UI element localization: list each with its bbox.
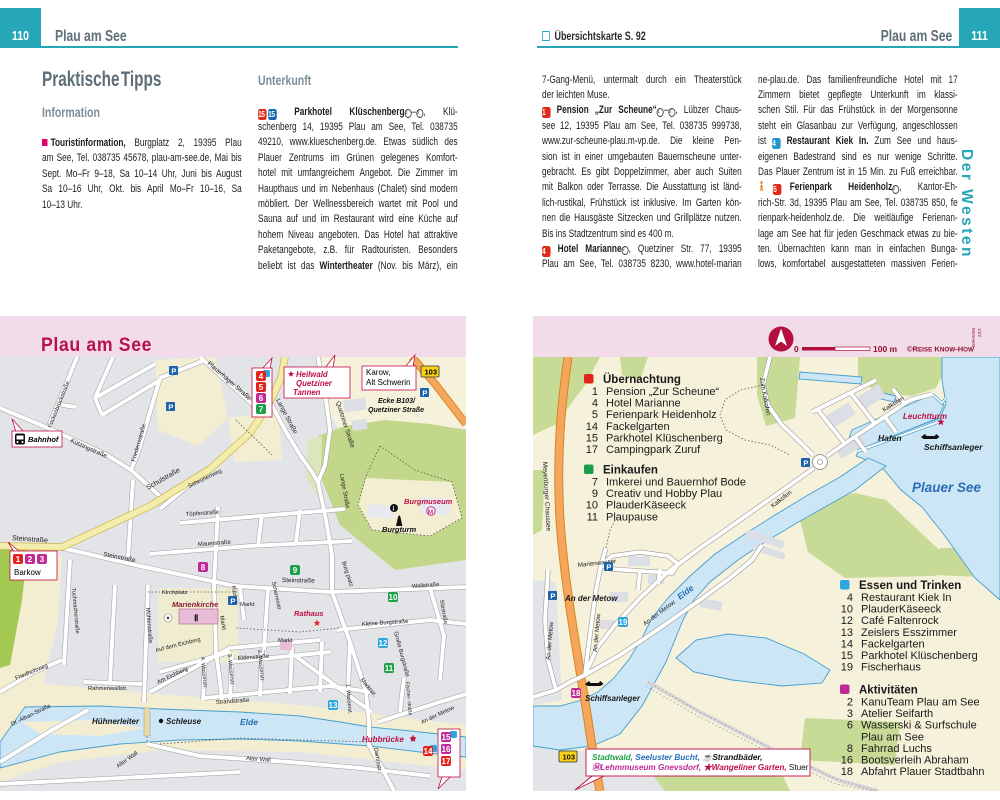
svg-text:19: 19: [619, 618, 628, 627]
svg-text:Creativ und Hobby Plau: Creativ und Hobby Plau: [606, 488, 722, 500]
svg-text:Heilwald: Heilwald: [296, 370, 328, 379]
svg-text:10: 10: [841, 604, 853, 616]
svg-text:Ecke B103/: Ecke B103/: [378, 398, 416, 405]
svg-text:Abfahrt Plauer Stadtbahn: Abfahrt Plauer Stadtbahn: [861, 766, 985, 778]
svg-text:Ferienpark Heidenholz: Ferienpark Heidenholz: [606, 409, 717, 421]
svg-text:An der Metow: An der Metow: [564, 594, 618, 603]
svg-text:Plaupause: Plaupause: [606, 511, 658, 523]
svg-text:P: P: [550, 591, 555, 600]
svg-text:4: 4: [259, 372, 264, 381]
svg-text:14: 14: [586, 421, 598, 433]
svg-text:8: 8: [201, 563, 206, 572]
svg-text:Elde: Elde: [240, 717, 258, 727]
svg-text:Schiffsanleger: Schiffsanleger: [924, 442, 983, 452]
svg-text:MeSee03: MeSee03: [971, 328, 976, 348]
svg-text:Bahnhof: Bahnhof: [28, 435, 60, 444]
svg-text:Leuchtturm: Leuchtturm: [903, 412, 947, 421]
svg-text:Quetziner Straße: Quetziner Straße: [368, 407, 424, 414]
svg-text:Steinstraße: Steinstraße: [282, 577, 315, 585]
svg-text:15: 15: [442, 733, 451, 742]
svg-text:Kirchplatz: Kirchplatz: [162, 590, 188, 596]
svg-text:P: P: [171, 366, 176, 375]
svg-text:16: 16: [442, 745, 451, 754]
svg-text:Hafen: Hafen: [878, 433, 902, 443]
svg-text:13: 13: [841, 627, 853, 639]
svg-text:18: 18: [572, 689, 581, 698]
svg-text:Stadtwald, Seeluster Bucht, ☕S: Stadtwald, Seeluster Bucht, ☕Strandbäder…: [592, 752, 762, 762]
svg-text:P: P: [230, 596, 235, 605]
svg-text:Quetziner: Quetziner: [296, 379, 333, 388]
svg-text:KanuTeam Plau am See: KanuTeam Plau am See: [861, 697, 980, 709]
svg-text:Restaurant Kiek In: Restaurant Kiek In: [861, 592, 952, 604]
svg-text:Plau am See: Plau am See: [41, 333, 152, 355]
svg-text:103: 103: [425, 368, 438, 377]
svg-text:Campingpark Zuruf: Campingpark Zuruf: [606, 444, 701, 456]
svg-text:PlauderKäseeck: PlauderKäseeck: [606, 500, 687, 512]
svg-text:Plau am See: Plau am See: [861, 731, 924, 743]
svg-text:Übernachtung: Übernachtung: [603, 373, 681, 386]
svg-text:10: 10: [389, 593, 398, 602]
svg-text:4: 4: [592, 398, 598, 410]
svg-text:Hotel Marianne: Hotel Marianne: [606, 398, 681, 410]
svg-text:Fackelgarten: Fackelgarten: [861, 638, 925, 650]
svg-text:Hubbrücke: Hubbrücke: [362, 735, 404, 744]
svg-text:5: 5: [259, 383, 264, 392]
svg-text:6: 6: [847, 720, 853, 732]
svg-text:1: 1: [16, 555, 21, 564]
svg-text:Essen und Trinken: Essen und Trinken: [859, 580, 961, 592]
svg-text:Plauer See: Plauer See: [912, 480, 982, 495]
svg-text:Barkow: Barkow: [14, 568, 41, 577]
svg-text:Einkaufen: Einkaufen: [603, 465, 658, 477]
svg-text:7: 7: [592, 477, 598, 489]
svg-text:Imkerei und Bauernhof Bode: Imkerei und Bauernhof Bode: [606, 477, 746, 489]
svg-text:0: 0: [794, 344, 799, 354]
svg-text:11: 11: [385, 664, 394, 673]
svg-text:Fackelgarten: Fackelgarten: [606, 421, 670, 433]
svg-text:103: 103: [563, 753, 576, 762]
svg-text:P: P: [168, 402, 173, 411]
svg-text:Markt: Markt: [240, 602, 255, 608]
svg-text:3: 3: [847, 708, 853, 720]
svg-text:9: 9: [293, 566, 298, 575]
svg-text:8: 8: [847, 743, 853, 755]
svg-text:10: 10: [586, 500, 598, 512]
svg-text:Alt Schwerin: Alt Schwerin: [366, 378, 410, 387]
svg-text:1: 1: [592, 386, 598, 398]
svg-text:©REISE KNOW-HOW: ©REISE KNOW-HOW: [907, 345, 974, 354]
svg-text:19: 19: [841, 662, 853, 674]
svg-text:12: 12: [379, 639, 388, 648]
svg-text:Tannen: Tannen: [293, 388, 321, 397]
svg-text:15: 15: [586, 432, 598, 444]
svg-text:Schleuse: Schleuse: [166, 717, 202, 726]
svg-text:Fischerhaus: Fischerhaus: [861, 662, 921, 674]
svg-text:12: 12: [841, 615, 853, 627]
svg-text:Rathaus: Rathaus: [294, 609, 324, 618]
svg-text:Parkhotel Klüschenberg: Parkhotel Klüschenberg: [861, 650, 978, 662]
svg-text:Café Faltenrock: Café Faltenrock: [861, 615, 939, 627]
svg-text:Aktivitäten: Aktivitäten: [859, 685, 918, 697]
svg-text:M: M: [428, 509, 433, 516]
svg-text:ⓂLehmmuseum Gnevsdorf, ★Wangel: ⓂLehmmuseum Gnevsdorf, ★Wangeliner Garte…: [592, 762, 809, 772]
svg-text:9: 9: [592, 488, 598, 500]
svg-text:2: 2: [28, 555, 33, 564]
svg-text:Zeislers Esszimmer: Zeislers Esszimmer: [861, 627, 957, 639]
svg-text:Burgturm: Burgturm: [382, 525, 416, 534]
svg-text:14: 14: [841, 638, 853, 650]
svg-text:13: 13: [329, 701, 338, 710]
svg-text:Atelier Seifarth: Atelier Seifarth: [861, 708, 933, 720]
svg-text:11: 11: [587, 511, 598, 523]
svg-text:18: 18: [841, 766, 853, 778]
svg-text:17: 17: [442, 757, 451, 766]
svg-text:i: i: [393, 506, 395, 513]
svg-text:P: P: [606, 562, 611, 571]
svg-text:5: 5: [592, 409, 598, 421]
svg-text:Pension „Zur Scheune“: Pension „Zur Scheune“: [606, 386, 719, 398]
svg-text:Ⅱ: Ⅱ: [194, 613, 198, 623]
svg-text:16: 16: [841, 755, 853, 767]
svg-text:15: 15: [841, 650, 853, 662]
svg-text:1/23: 1/23: [977, 328, 982, 337]
svg-text:Rahmenwallstr.: Rahmenwallstr.: [88, 686, 128, 692]
svg-text:7: 7: [259, 405, 264, 414]
svg-text:Marienkirche: Marienkirche: [172, 600, 218, 609]
svg-text:14: 14: [424, 747, 433, 756]
svg-text:Schiffsanleger: Schiffsanleger: [585, 694, 641, 703]
svg-text:Bootsverleih Abraham: Bootsverleih Abraham: [861, 755, 969, 767]
svg-text:4: 4: [847, 592, 853, 604]
svg-text:Parkhotel Klüschenberg: Parkhotel Klüschenberg: [606, 432, 723, 444]
svg-text:P: P: [422, 388, 427, 397]
svg-text:Burgmuseum: Burgmuseum: [404, 497, 453, 506]
svg-text:Wasserski & Surfschule: Wasserski & Surfschule: [861, 720, 977, 732]
svg-text:Markt: Markt: [278, 638, 293, 644]
svg-text:6: 6: [259, 394, 264, 403]
svg-text:Fahrrad Luchs: Fahrrad Luchs: [861, 743, 932, 755]
svg-text:PlauderKäseeck: PlauderKäseeck: [861, 604, 942, 616]
svg-text:17: 17: [586, 444, 598, 456]
svg-text:3: 3: [40, 555, 45, 564]
svg-text:Hühnerleiter: Hühnerleiter: [92, 717, 140, 726]
svg-text:2: 2: [847, 697, 853, 709]
svg-text:100 m: 100 m: [873, 344, 898, 354]
svg-text:P: P: [803, 458, 808, 467]
svg-text:Karow,: Karow,: [366, 368, 390, 377]
